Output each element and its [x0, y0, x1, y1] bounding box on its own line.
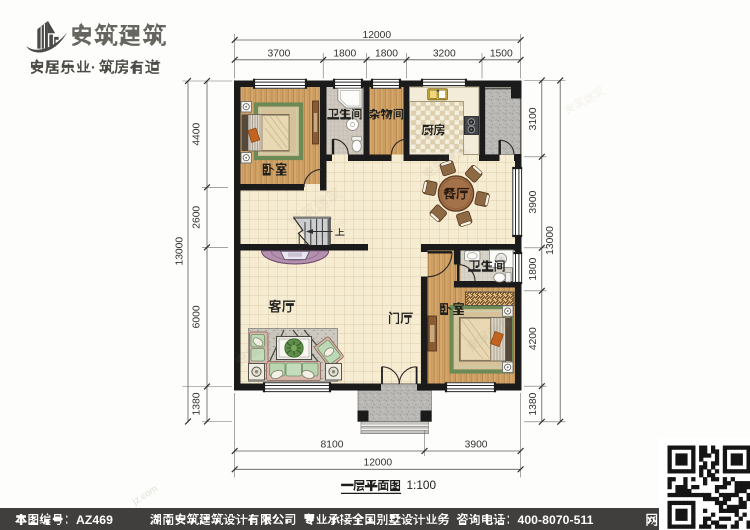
svg-text:·: ·	[91, 59, 96, 76]
svg-text:1:100: 1:100	[407, 478, 437, 492]
svg-text:3100: 3100	[528, 107, 539, 130]
svg-text:12000: 12000	[362, 30, 391, 41]
svg-text:AZ469: AZ469	[76, 513, 113, 527]
svg-text:1800: 1800	[528, 257, 539, 280]
svg-text:4200: 4200	[528, 327, 539, 350]
svg-text:2600: 2600	[192, 206, 203, 229]
svg-text:6000: 6000	[192, 305, 203, 328]
svg-text:4400: 4400	[192, 122, 203, 145]
svg-text:3900: 3900	[528, 190, 539, 213]
svg-text:12000: 12000	[363, 458, 392, 469]
svg-text:1800: 1800	[375, 48, 398, 59]
svg-text:3700: 3700	[267, 48, 290, 59]
svg-text:3900: 3900	[465, 440, 488, 451]
svg-text:13000: 13000	[545, 226, 556, 255]
svg-text:1380: 1380	[528, 392, 539, 415]
svg-text:1380: 1380	[192, 392, 203, 415]
svg-text:8100: 8100	[321, 440, 344, 451]
svg-text:1500: 1500	[490, 48, 513, 59]
svg-text:13000: 13000	[174, 237, 185, 266]
svg-text:3200: 3200	[433, 48, 456, 59]
svg-text:1800: 1800	[333, 48, 356, 59]
svg-text:400-8070-511: 400-8070-511	[518, 513, 594, 527]
